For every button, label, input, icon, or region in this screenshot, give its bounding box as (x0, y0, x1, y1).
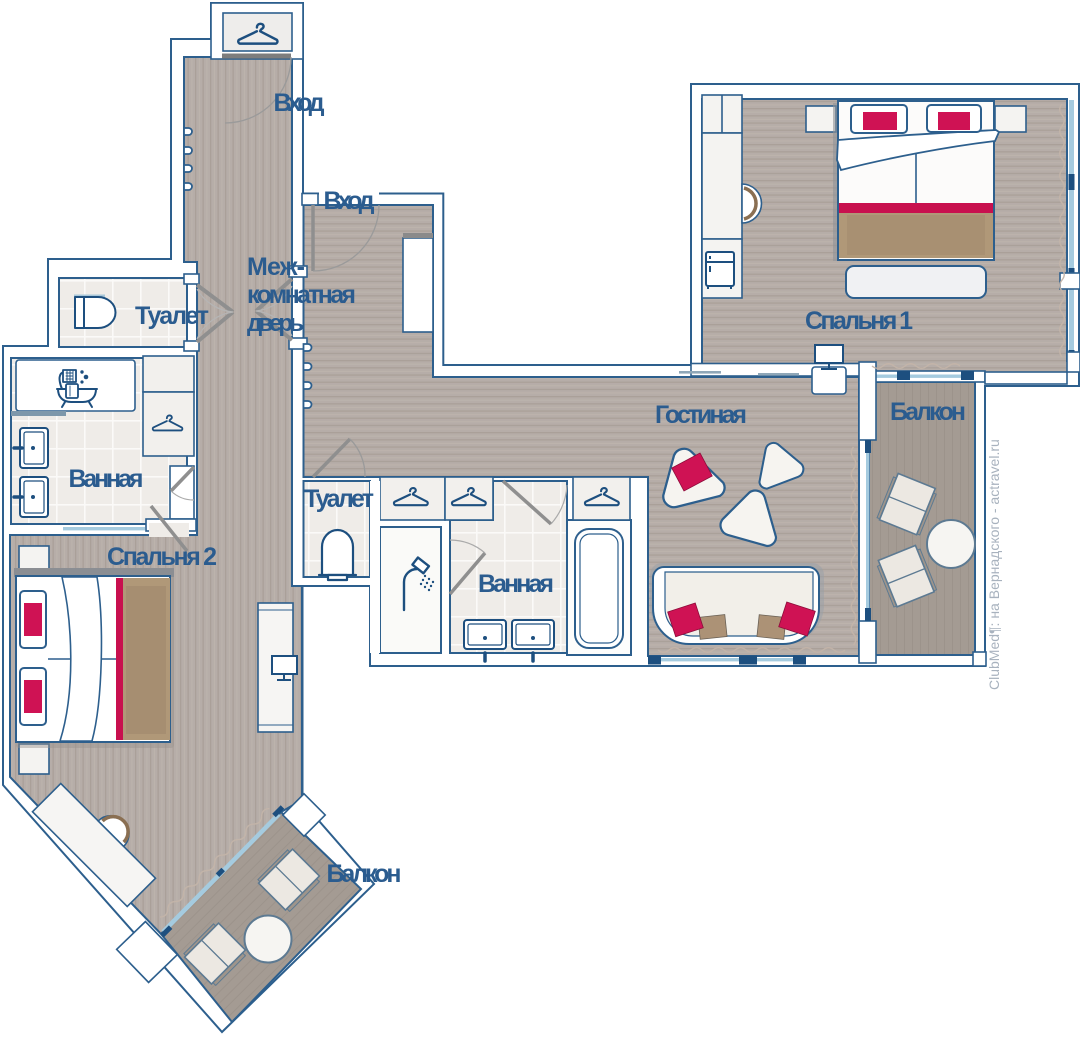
svg-text:Балкон: Балкон (327, 860, 402, 888)
svg-text:Туалет: Туалет (304, 485, 374, 513)
svg-text:Балкон: Балкон (890, 398, 966, 426)
svg-text:Ванная: Ванная (478, 570, 554, 598)
svg-text:Вход: Вход (274, 89, 325, 117)
svg-text:Спальня 1: Спальня 1 (805, 307, 913, 335)
svg-text:Меж-: Меж- (247, 253, 305, 281)
svg-text:Спальня 2: Спальня 2 (107, 543, 217, 571)
svg-text:Туалет: Туалет (135, 302, 209, 330)
svg-text:Ванная: Ванная (69, 465, 144, 493)
svg-text:ClubMed¶: на Вернадского - act: ClubMed¶: на Вернадского - actravel.ru (986, 439, 1002, 690)
svg-text:Вход: Вход (324, 187, 375, 215)
svg-text:Гостиная: Гостиная (655, 401, 747, 429)
svg-text:дверь: дверь (247, 310, 304, 337)
svg-text:комнатная: комнатная (247, 281, 356, 309)
